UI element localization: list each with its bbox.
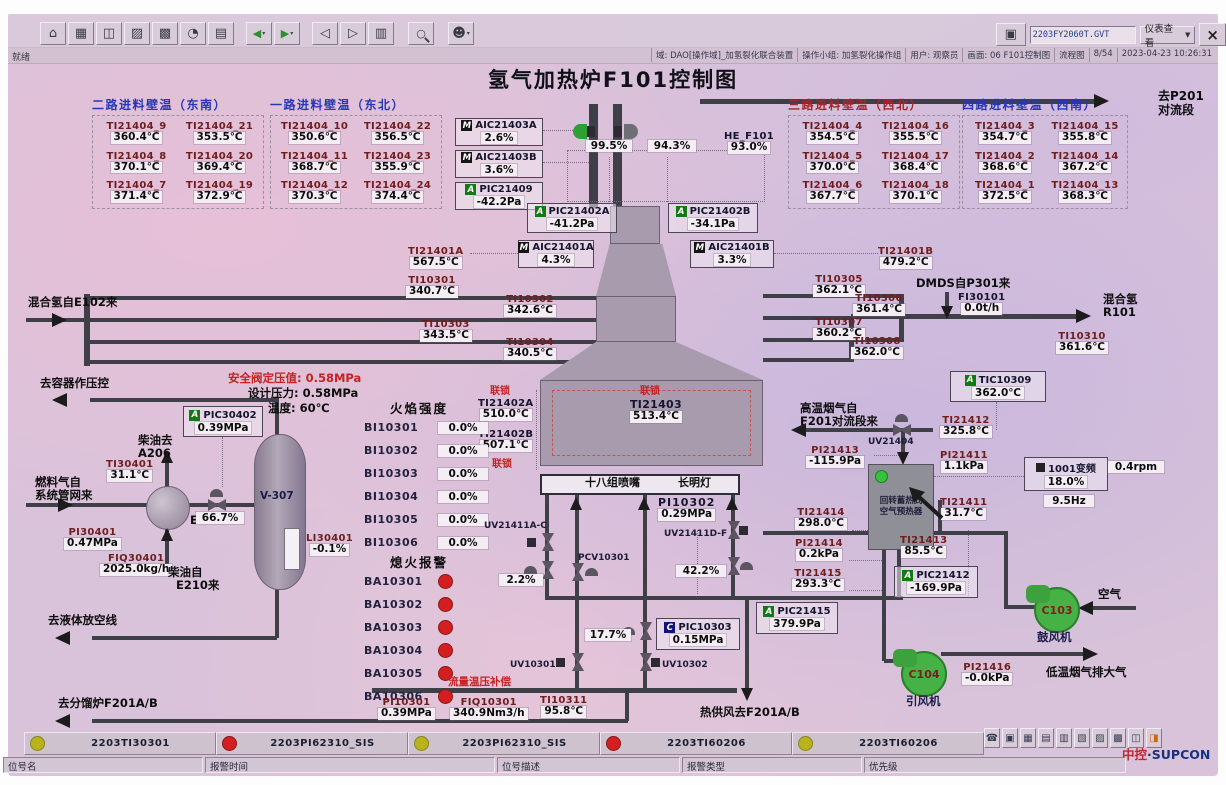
- table-icon[interactable]: ▦: [68, 22, 94, 45]
- wall-temp-cell[interactable]: TI21404_21353.5℃: [178, 121, 261, 144]
- pipe: [275, 586, 279, 638]
- signal-line: [222, 437, 223, 487]
- instrument-ti10302[interactable]: TI10302342.6℃: [504, 294, 556, 317]
- v307-label: V-307: [260, 490, 294, 502]
- pipe: [803, 428, 933, 432]
- auto-badge: A: [535, 206, 546, 217]
- valve-body: [587, 126, 595, 137]
- air-flow-arrow: [906, 486, 948, 524]
- instrument-ti30401[interactable]: TI3040131.1℃: [106, 459, 153, 482]
- instrument-fiq10301[interactable]: FIQ10301340.9Nm3/h: [450, 697, 528, 720]
- cascade-badge: C: [664, 622, 675, 633]
- pilot-lamp-label: 长明灯: [678, 477, 711, 490]
- status-segment: 8/54: [1089, 48, 1117, 62]
- fan-c103[interactable]: C103: [1034, 587, 1080, 633]
- valve-pilot-value[interactable]: 17.7%: [585, 629, 631, 641]
- vfd-frequency: 9.5Hz: [1044, 495, 1094, 507]
- status-segments: 域: DAO[操作域]_加氢裂化联合装置操作小组: 加氢裂化操作组用户: 观察员…: [651, 48, 1216, 62]
- alarm-dot: [438, 643, 453, 658]
- home-icon[interactable]: ⌂: [40, 22, 66, 45]
- valve-actuator: [556, 658, 565, 667]
- instrument-pi21411[interactable]: PI214111.1kPa: [940, 450, 988, 473]
- flameout-row[interactable]: BA10302: [364, 598, 453, 611]
- flow-arrow-up: [161, 528, 173, 541]
- mode-badge: [1036, 463, 1045, 472]
- instrument-aic21401a[interactable]: MAIC21401A4.3%: [518, 240, 594, 268]
- wall-temp-cell[interactable]: TI21404_16355.5℃: [874, 121, 957, 144]
- furnace-neck: [596, 244, 676, 296]
- stack-damper-b-value[interactable]: 94.3%: [648, 140, 696, 152]
- pipe: [1090, 606, 1136, 610]
- instrument-ti10304[interactable]: TI10304340.5℃: [504, 337, 556, 360]
- pipe: [88, 318, 630, 322]
- wall-temp-cell[interactable]: TI21404_5370.0℃: [791, 151, 874, 174]
- flow-arrow-left: [55, 714, 70, 728]
- to-p201-label: 去P201对流段: [1158, 90, 1204, 118]
- alarm-priority-dot: [222, 736, 237, 751]
- signal-line: [667, 157, 668, 202]
- instrument-pic21402a[interactable]: APIC21402A-41.2Pa: [527, 203, 617, 233]
- gauge-icon[interactable]: ◔: [180, 22, 206, 45]
- screen-file-input[interactable]: [1030, 26, 1136, 44]
- alarm-field[interactable]: 位号描述: [497, 757, 680, 773]
- alarm-page-icon[interactable]: ▧: [1074, 728, 1090, 748]
- flow-arrow-up: [726, 497, 738, 510]
- valve-uv10301-label: UV10301: [510, 660, 556, 670]
- c103-name-label: 鼓风机: [1037, 631, 1072, 644]
- pipe: [1004, 605, 1036, 609]
- status-segment: 画面: 06 F101控制图: [962, 48, 1054, 62]
- instrument-ti10301[interactable]: TI10301340.7℃: [406, 275, 458, 298]
- alarm-bar: 2203TI303012203PI62310_SIS2203PI62310_SI…: [24, 732, 984, 755]
- instrument-ti21403[interactable]: TI21403513.4℃: [630, 399, 682, 423]
- supcon-logo: 中控·SUPCON: [1122, 744, 1210, 763]
- level-gauge: [284, 528, 300, 570]
- fuel-gas-inlet-label: 燃料气自系统管网来: [35, 476, 93, 502]
- instrument-ti10308[interactable]: TI10308362.0℃: [851, 336, 903, 359]
- flue-out-label: 低温烟气排大气: [1046, 666, 1127, 679]
- wall-temp-group-2: 二路进料壁温（东南） TI21404_9360.4℃TI21404_21353.…: [92, 96, 264, 209]
- running-indicator: [875, 470, 888, 483]
- auto-badge: A: [465, 184, 476, 195]
- instrument-pic21415[interactable]: APIC21415379.9Pa: [756, 602, 838, 634]
- wall-temp-cell[interactable]: TI21404_24374.4℃: [356, 180, 439, 203]
- instrument-ti10303[interactable]: TI10303343.5℃: [420, 319, 472, 342]
- alarm-field[interactable]: 报警时间: [205, 757, 495, 773]
- wall-temp-cell[interactable]: TI21404_7371.4℃: [95, 180, 178, 203]
- view-mode-select[interactable]: 仪表查看▼: [1140, 26, 1196, 44]
- instrument-pic21412[interactable]: APIC21412-169.9Pa: [894, 566, 978, 598]
- list-icon[interactable]: ▨: [1092, 728, 1108, 748]
- design-temp-label: 温度: 60℃: [268, 402, 330, 415]
- wall-temp-cell[interactable]: TI21404_12370.3℃: [273, 180, 356, 203]
- print-icon[interactable]: ▣: [996, 23, 1026, 46]
- alarm-cell[interactable]: 2203TI30301: [24, 732, 216, 755]
- status-segment: 2023-04-23 10:26:31: [1117, 48, 1216, 62]
- signal-line: [697, 530, 698, 594]
- wall-temp-cell[interactable]: TI21404_10350.6℃: [273, 121, 356, 144]
- flow-arrow-down: [941, 306, 953, 319]
- flue-inlet-label: 高温烟气自F201对流段来: [800, 402, 878, 428]
- manual-badge: M: [461, 120, 472, 131]
- exchanger-e217[interactable]: [146, 486, 190, 530]
- wall-temp-group-3: 三路进料壁温（西北） TI21404_4354.5℃TI21404_16355.…: [788, 96, 960, 209]
- wall-temp-group-1: 一路进料壁温（东北） TI21404_10350.6℃TI21404_22356…: [270, 96, 442, 209]
- design-pressure-label: 设计压力: 0.58MPa: [248, 387, 358, 400]
- save-icon[interactable]: ▤: [1038, 728, 1054, 748]
- auto-badge: A: [189, 410, 200, 421]
- flow-arrow-left: [1078, 601, 1093, 615]
- instrument-li30401[interactable]: LI30401-0.1%: [306, 533, 353, 556]
- auto-badge: A: [763, 606, 774, 617]
- wall-temp-cell[interactable]: TI21404_11368.7℃: [273, 151, 356, 174]
- alarm-field[interactable]: 优先级: [864, 757, 1126, 773]
- diesel-in-label: 柴油自E210来: [168, 566, 219, 592]
- flow-arrow-right: [1076, 309, 1091, 323]
- instrument-tic10309[interactable]: ATIC10309362.0℃: [950, 371, 1046, 402]
- flow-arrow-right: [1083, 647, 1098, 661]
- to-vent-label: 去液体放空线: [48, 614, 117, 627]
- flame-intensity-list: BI103010.0%BI103020.0%BI103030.0%BI10304…: [364, 421, 488, 549]
- instrument-ti21402a[interactable]: TI21402A510.0℃: [478, 398, 533, 421]
- valve-pcv10301-label: PCV10301: [578, 553, 629, 563]
- page-prev-icon[interactable]: ◁: [312, 22, 338, 45]
- stack-damper-a-value[interactable]: 99.5%: [586, 140, 632, 152]
- wall-temp-cell[interactable]: TI21404_17368.4℃: [874, 151, 957, 174]
- flow-arrow-up: [638, 497, 650, 510]
- wall-temp-cell[interactable]: TI21404_13368.3℃: [1045, 180, 1125, 203]
- alarm-cell[interactable]: 2203PI62310_SIS: [216, 732, 408, 755]
- vfd-rpm: 0.4rpm: [1108, 461, 1164, 473]
- to-vessel-label: 去容器作压控: [40, 377, 109, 390]
- wall-temp-cell[interactable]: TI21404_22356.5℃: [356, 121, 439, 144]
- flame-intensity-title: 火焰强度: [390, 402, 448, 416]
- furnace-mid: [596, 296, 676, 342]
- signal-line: [934, 476, 1024, 477]
- flameout-alarm-title: 熄火报警: [390, 556, 448, 570]
- signal-line: [536, 390, 537, 470]
- instrument-ti21401a[interactable]: TI21401A567.5℃: [408, 246, 463, 269]
- h2-outlet-label: 混合氢R101: [1103, 293, 1138, 319]
- instrument-ti10310[interactable]: TI10310361.6℃: [1056, 331, 1108, 354]
- instrument-ti21413[interactable]: TI2141385.5℃: [900, 535, 947, 558]
- pipe: [745, 598, 749, 690]
- dmds-label: DMDS自P301来: [916, 277, 1010, 290]
- monitor-icon[interactable]: ▦: [1020, 728, 1036, 748]
- valve-burner-d-value[interactable]: 42.2%: [676, 565, 726, 577]
- manual-badge: M: [461, 152, 472, 163]
- alarm-field[interactable]: 报警类型: [682, 757, 862, 773]
- valve-actuator: [895, 414, 908, 422]
- close-icon[interactable]: ×: [1199, 23, 1226, 46]
- pipe: [625, 690, 629, 721]
- alarm-field[interactable]: 位号名: [3, 757, 203, 773]
- valve-uv10302-label: UV10302: [662, 660, 708, 670]
- instrument-aic21403b[interactable]: MAIC21403B3.6%: [455, 150, 543, 178]
- valve-fuel-value[interactable]: 66.7%: [196, 512, 244, 524]
- wall-temp-cell[interactable]: TI21404_18370.1℃: [874, 180, 957, 203]
- wall-temp-cell[interactable]: TI21404_3354.7℃: [965, 121, 1045, 144]
- to-f201-label: 去分馏炉F201A/B: [58, 697, 158, 710]
- page-next-icon[interactable]: ▷: [340, 22, 366, 45]
- calendar-icon[interactable]: ▥: [1056, 728, 1072, 748]
- instrument-ti21414[interactable]: TI21414298.0℃: [795, 507, 847, 530]
- alarm-priority-dot: [606, 736, 621, 751]
- h2-inlet-label: 混合氢自E102来: [28, 296, 117, 309]
- auto-badge: A: [902, 570, 913, 581]
- instrument-pi21416[interactable]: PI21416-0.0kPa: [962, 662, 1012, 685]
- wall-temp-cell[interactable]: TI21404_23355.9℃: [356, 151, 439, 174]
- signal-line: [849, 590, 882, 591]
- alarm-priority-dot: [414, 736, 429, 751]
- document-icon[interactable]: ▤: [208, 22, 234, 45]
- instrument-aic21403a[interactable]: MAIC21403A2.6%: [455, 118, 543, 146]
- flow-arrow-right: [52, 313, 67, 327]
- signal-line: [609, 157, 610, 202]
- flow-arrow-down: [741, 688, 753, 701]
- pipe: [763, 358, 853, 362]
- valve-actuator: [524, 566, 537, 574]
- search-icon[interactable]: ○: [408, 22, 434, 45]
- flameout-row[interactable]: BA10303: [364, 621, 453, 634]
- wall-temp-cell[interactable]: TI21404_14367.2℃: [1045, 151, 1125, 174]
- alarm-dot: [438, 620, 453, 635]
- book-icon[interactable]: ▥: [368, 22, 394, 45]
- instrument-he-f101[interactable]: HE_F10193.0%: [724, 131, 774, 154]
- wall-temp-cell[interactable]: TI21404_6367.7℃: [791, 180, 874, 203]
- flame-row[interactable]: BI103010.0%: [364, 421, 488, 434]
- psv-setting-label: 安全阀定压值: 0.58MPa: [228, 372, 361, 385]
- pipe: [545, 596, 903, 600]
- manual-badge: M: [694, 242, 705, 253]
- valve-uv21411df-label: UV21411D-F: [664, 529, 727, 539]
- hot-air-label: 热供风去F201A/B: [700, 706, 800, 719]
- instrument-pi21414[interactable]: PI214140.2kPa: [795, 538, 843, 561]
- flameout-alarm-list: BA10301BA10302BA10303BA10304BA10305BA103…: [364, 575, 453, 703]
- valve-actuator: [740, 562, 753, 570]
- interlock-label: 联锁: [640, 386, 660, 398]
- wall-temp-cell[interactable]: TI21404_9360.4℃: [95, 121, 178, 144]
- window-icon[interactable]: ◫: [96, 22, 122, 45]
- valve-body: [614, 126, 622, 137]
- instrument-ti21401b[interactable]: TI21401B479.2℃: [878, 246, 933, 269]
- valve-actuator: [210, 489, 223, 497]
- alarm-priority-dot: [798, 736, 813, 751]
- pipe: [88, 360, 630, 364]
- instrument-ti21412[interactable]: TI21412325.8℃: [940, 415, 992, 438]
- valve-uv21411ac-label: UV21411A-C: [484, 521, 547, 531]
- pipe: [92, 636, 277, 640]
- flow-arrow-left: [52, 393, 67, 407]
- instrument-ti21415[interactable]: TI21415293.3℃: [792, 568, 844, 591]
- alarm-dot: [438, 574, 453, 589]
- chevron-down-icon: ▼: [1185, 31, 1190, 39]
- valve-uv21404-label: UV21404: [868, 437, 914, 447]
- headset-icon[interactable]: ☎: [984, 728, 1000, 748]
- wall-temp-cell[interactable]: TI21404_4354.5℃: [791, 121, 874, 144]
- flameout-row[interactable]: BA10301: [364, 575, 453, 588]
- burner-nozzles-label: 十八组喷嘴: [585, 477, 640, 490]
- user-icon[interactable]: ☻: [448, 22, 474, 45]
- c104-name-label: 引风机: [906, 695, 941, 708]
- flameout-row[interactable]: BA10305: [364, 667, 453, 680]
- toolbar-right-cluster: ▣ 仪表查看▼ ×: [996, 23, 1226, 46]
- alarm-cell[interactable]: 2203PI62310_SIS: [408, 732, 600, 755]
- alarm-cell[interactable]: 2203TI60206: [792, 732, 984, 755]
- instrument-pi10302[interactable]: PI103020.29MPa: [658, 497, 715, 521]
- status-segment: 用户: 观察员: [905, 48, 962, 62]
- signal-line: [774, 253, 878, 254]
- valve-actuator: [651, 658, 660, 667]
- alarm-priority-dot: [30, 736, 45, 751]
- wall-temp-cell[interactable]: TI21404_20369.4℃: [178, 151, 261, 174]
- valve-actuator: [739, 526, 748, 535]
- unlock-icon[interactable]: ▣: [1002, 728, 1018, 748]
- interlock-label: 联锁: [492, 459, 512, 471]
- instrument-pi21413[interactable]: PI21413-115.9Pa: [806, 445, 864, 468]
- plant-icon[interactable]: ▨: [124, 22, 150, 45]
- wall-temp-cell[interactable]: TI21404_8370.1℃: [95, 151, 178, 174]
- instrument-ti10311[interactable]: TI1031195.8℃: [540, 695, 587, 718]
- flame-row[interactable]: BI103050.0%: [364, 513, 488, 526]
- grid-icon[interactable]: ▩: [152, 22, 178, 45]
- instrument-pic30402[interactable]: APIC304020.39MPa: [183, 406, 263, 437]
- page-title: 氢气加热炉F101控制图: [488, 64, 738, 94]
- instrument-pic21402b[interactable]: APIC21402B-34.1Pa: [668, 203, 758, 233]
- auto-badge: A: [965, 375, 976, 386]
- pipe: [1004, 533, 1008, 609]
- instrument-fiq30401[interactable]: FIQ304012025.0kg/h: [100, 553, 172, 576]
- alarm-cell[interactable]: 2203TI60206: [600, 732, 792, 755]
- alarm-field-row: 位号名报警时间位号描述报警类型优先级: [3, 757, 1126, 773]
- instrument-pi30401[interactable]: PI304010.47MPa: [64, 527, 121, 550]
- wall-temp-cell[interactable]: TI21404_1372.5℃: [965, 180, 1045, 203]
- signal-line: [849, 560, 882, 561]
- flame-row[interactable]: BI103040.0%: [364, 490, 488, 503]
- wall-temp-cell[interactable]: TI21404_15355.8℃: [1045, 121, 1125, 144]
- flame-row[interactable]: BI103030.0%: [364, 467, 488, 480]
- wall-temp-cell[interactable]: TI21404_19372.9℃: [178, 180, 261, 203]
- pipe: [92, 719, 628, 723]
- air-label: 空气: [1098, 588, 1121, 601]
- valve-actuator: [527, 538, 536, 547]
- status-segment: 操作小组: 加氢裂化操作组: [797, 48, 905, 62]
- manual-badge: M: [518, 242, 529, 253]
- signal-line: [543, 162, 589, 163]
- status-segment: 流程图: [1054, 48, 1089, 62]
- pipe: [882, 531, 886, 661]
- signal-line: [470, 253, 518, 254]
- pipe: [941, 652, 1086, 656]
- valve-burner-a-value[interactable]: 2.2%: [499, 574, 543, 586]
- instrument-ti10306[interactable]: TI10306361.4℃: [853, 293, 905, 316]
- instrument-pi10301[interactable]: PI103010.39MPa: [378, 697, 435, 720]
- auto-badge: A: [676, 206, 687, 217]
- ready-status: 就绪: [12, 50, 30, 63]
- wall-temp-cell[interactable]: TI21404_2368.6℃: [965, 151, 1045, 174]
- flow-arrow-left: [55, 631, 70, 645]
- valve-actuator: [585, 568, 598, 576]
- back-icon[interactable]: ◀: [246, 22, 272, 45]
- pipe: [731, 495, 735, 600]
- flow-arrow-up: [570, 497, 582, 510]
- forward-icon[interactable]: ▶: [274, 22, 300, 45]
- status-segment: 域: DAO[操作域]_加氢裂化联合装置: [651, 48, 797, 62]
- instrument-aic21401b[interactable]: MAIC21401B3.3%: [690, 240, 774, 268]
- fan-c104[interactable]: C104: [901, 651, 947, 697]
- compensation-label: 流量温压补偿: [448, 676, 511, 688]
- flame-row[interactable]: BI103060.0%: [364, 536, 488, 549]
- instrument-pic10303[interactable]: CPIC103030.15MPa: [656, 618, 740, 650]
- flameout-row[interactable]: BA10304: [364, 644, 453, 657]
- diesel-out-label: 柴油去A206: [138, 434, 173, 460]
- instrument-vfd-1001[interactable]: 1001变频18.0%: [1024, 457, 1108, 491]
- instrument-fi30101[interactable]: FI301010.0t/h: [958, 292, 1005, 315]
- wall-temp-group-4: 四路进料壁温（西南） TI21404_3354.7℃TI21404_15355.…: [962, 96, 1128, 209]
- stack-damper-a-icon[interactable]: [573, 124, 587, 139]
- main-toolbar: ⌂▦◫▨▩◔▤◀▶◁▷▥○☻: [40, 22, 474, 45]
- signal-line: [996, 402, 997, 430]
- interlock-label: 联锁: [490, 386, 510, 398]
- signal-line: [567, 150, 765, 202]
- furnace-stack: [610, 206, 660, 244]
- flame-row[interactable]: BI103020.0%: [364, 444, 488, 457]
- alarm-dot: [438, 597, 453, 612]
